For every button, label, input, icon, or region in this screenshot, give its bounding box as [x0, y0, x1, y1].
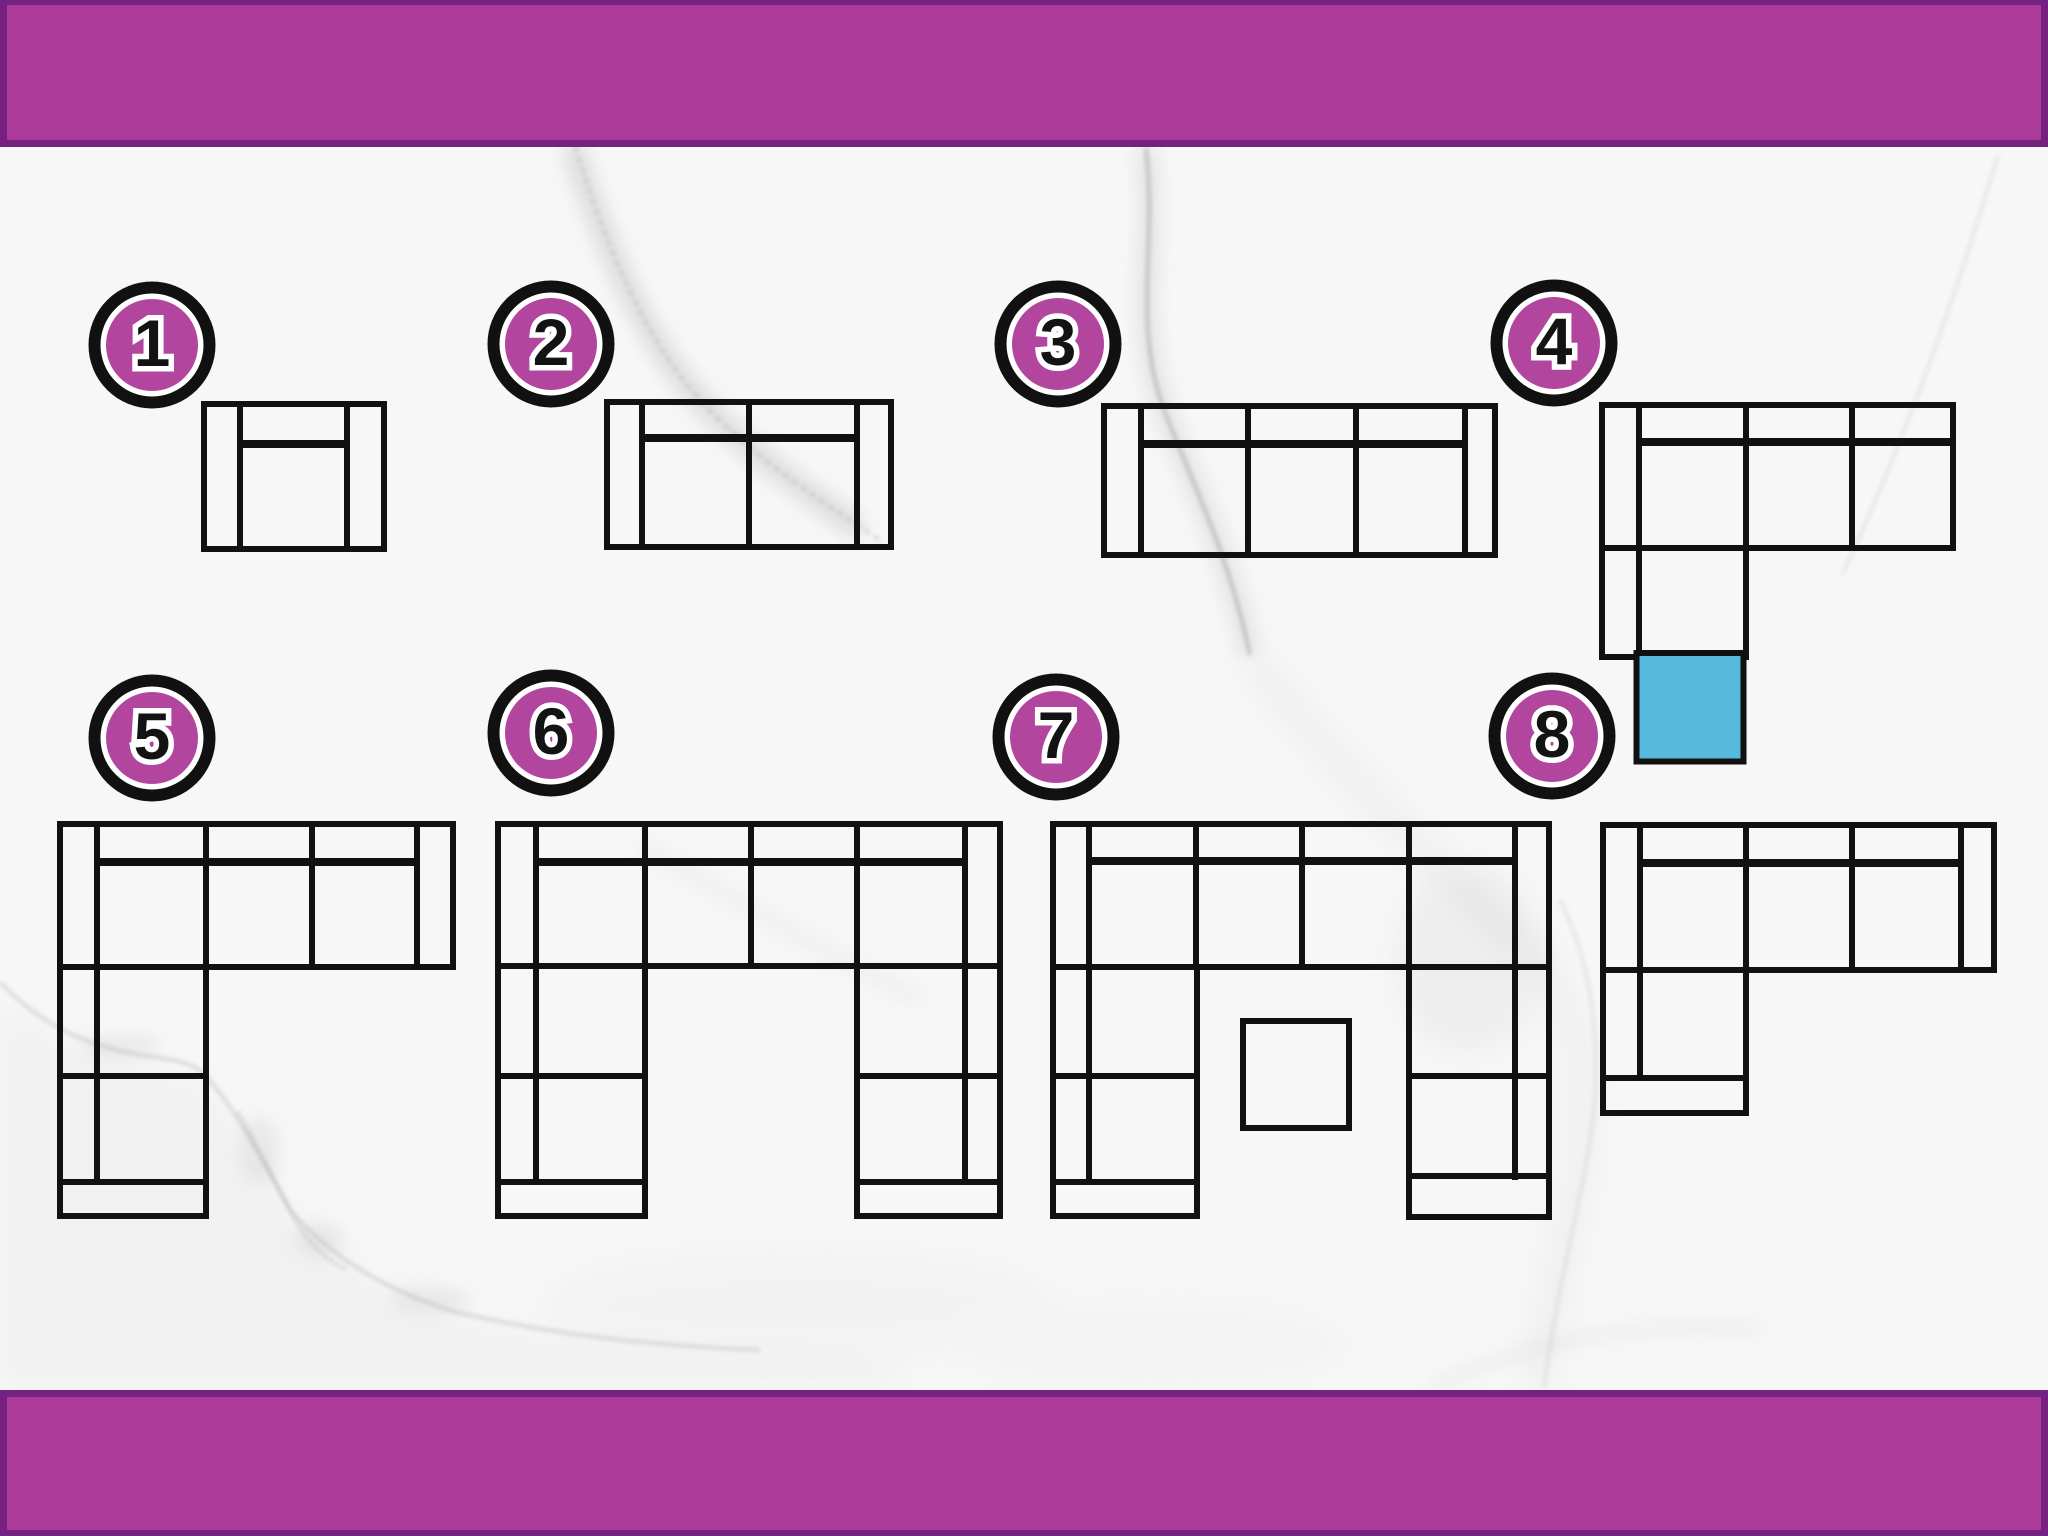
svg-text:7: 7 — [1038, 698, 1075, 772]
svg-text:5: 5 — [134, 699, 171, 773]
svg-text:6: 6 — [533, 694, 570, 768]
svg-text:2: 2 — [533, 305, 570, 379]
svg-text:8: 8 — [1534, 697, 1571, 771]
svg-text:4: 4 — [1536, 304, 1573, 378]
svg-text:3: 3 — [1040, 305, 1077, 379]
svg-text:1: 1 — [134, 306, 171, 380]
